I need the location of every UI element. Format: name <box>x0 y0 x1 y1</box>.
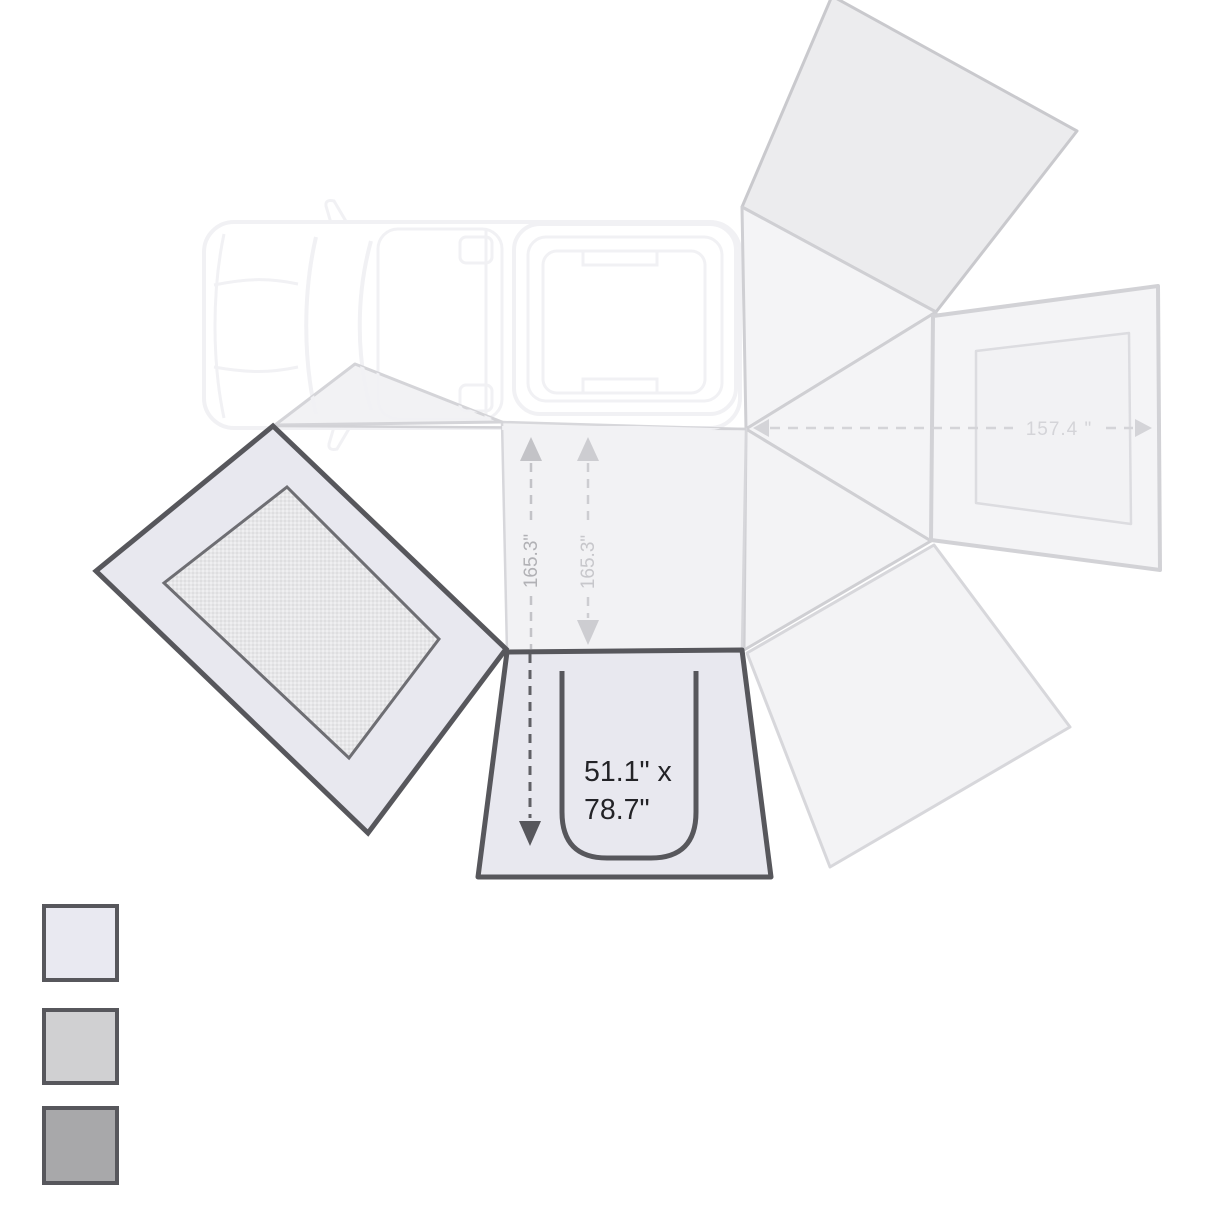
fabric-swatch-light <box>44 906 117 980</box>
vehicle-hood-line-bottom <box>214 367 298 372</box>
side-wall-panel-with-window <box>96 426 506 833</box>
wall-size-label-line1: 51.1" x <box>584 756 672 788</box>
vehicle-mirror-bottom <box>329 427 350 449</box>
side-depth-label-1: 165.3" <box>521 534 542 588</box>
fabric-swatch-medium <box>44 1010 117 1083</box>
awning-diagram-stage: 165.3" 165.3" 157.4 " 51.1" x 78.7" <box>0 0 1214 1214</box>
vehicle-windshield-left <box>306 237 316 414</box>
vehicle-front-bumper-line <box>215 234 224 418</box>
vehicle-hood-line-top <box>214 280 298 285</box>
side-depth-label-2: 165.3" <box>578 535 599 589</box>
rear-width-label: 157.4 " <box>1026 419 1093 440</box>
vehicle-cargo-mid <box>528 237 722 401</box>
fabric-swatch-dark <box>44 1108 117 1183</box>
awning-dimension-diagram: 165.3" 165.3" 157.4 " 51.1" x 78.7" <box>0 0 1214 1214</box>
vehicle-cargo-notches <box>583 252 657 392</box>
vehicle-cargo-inner <box>543 251 705 393</box>
vehicle-mirror-top <box>326 201 347 223</box>
front-wall-panel: 51.1" x 78.7" <box>478 650 771 877</box>
fabric-color-legend <box>44 906 117 1183</box>
wall-size-label-line2: 78.7" <box>584 794 650 826</box>
vehicle-body-outline <box>204 222 740 428</box>
